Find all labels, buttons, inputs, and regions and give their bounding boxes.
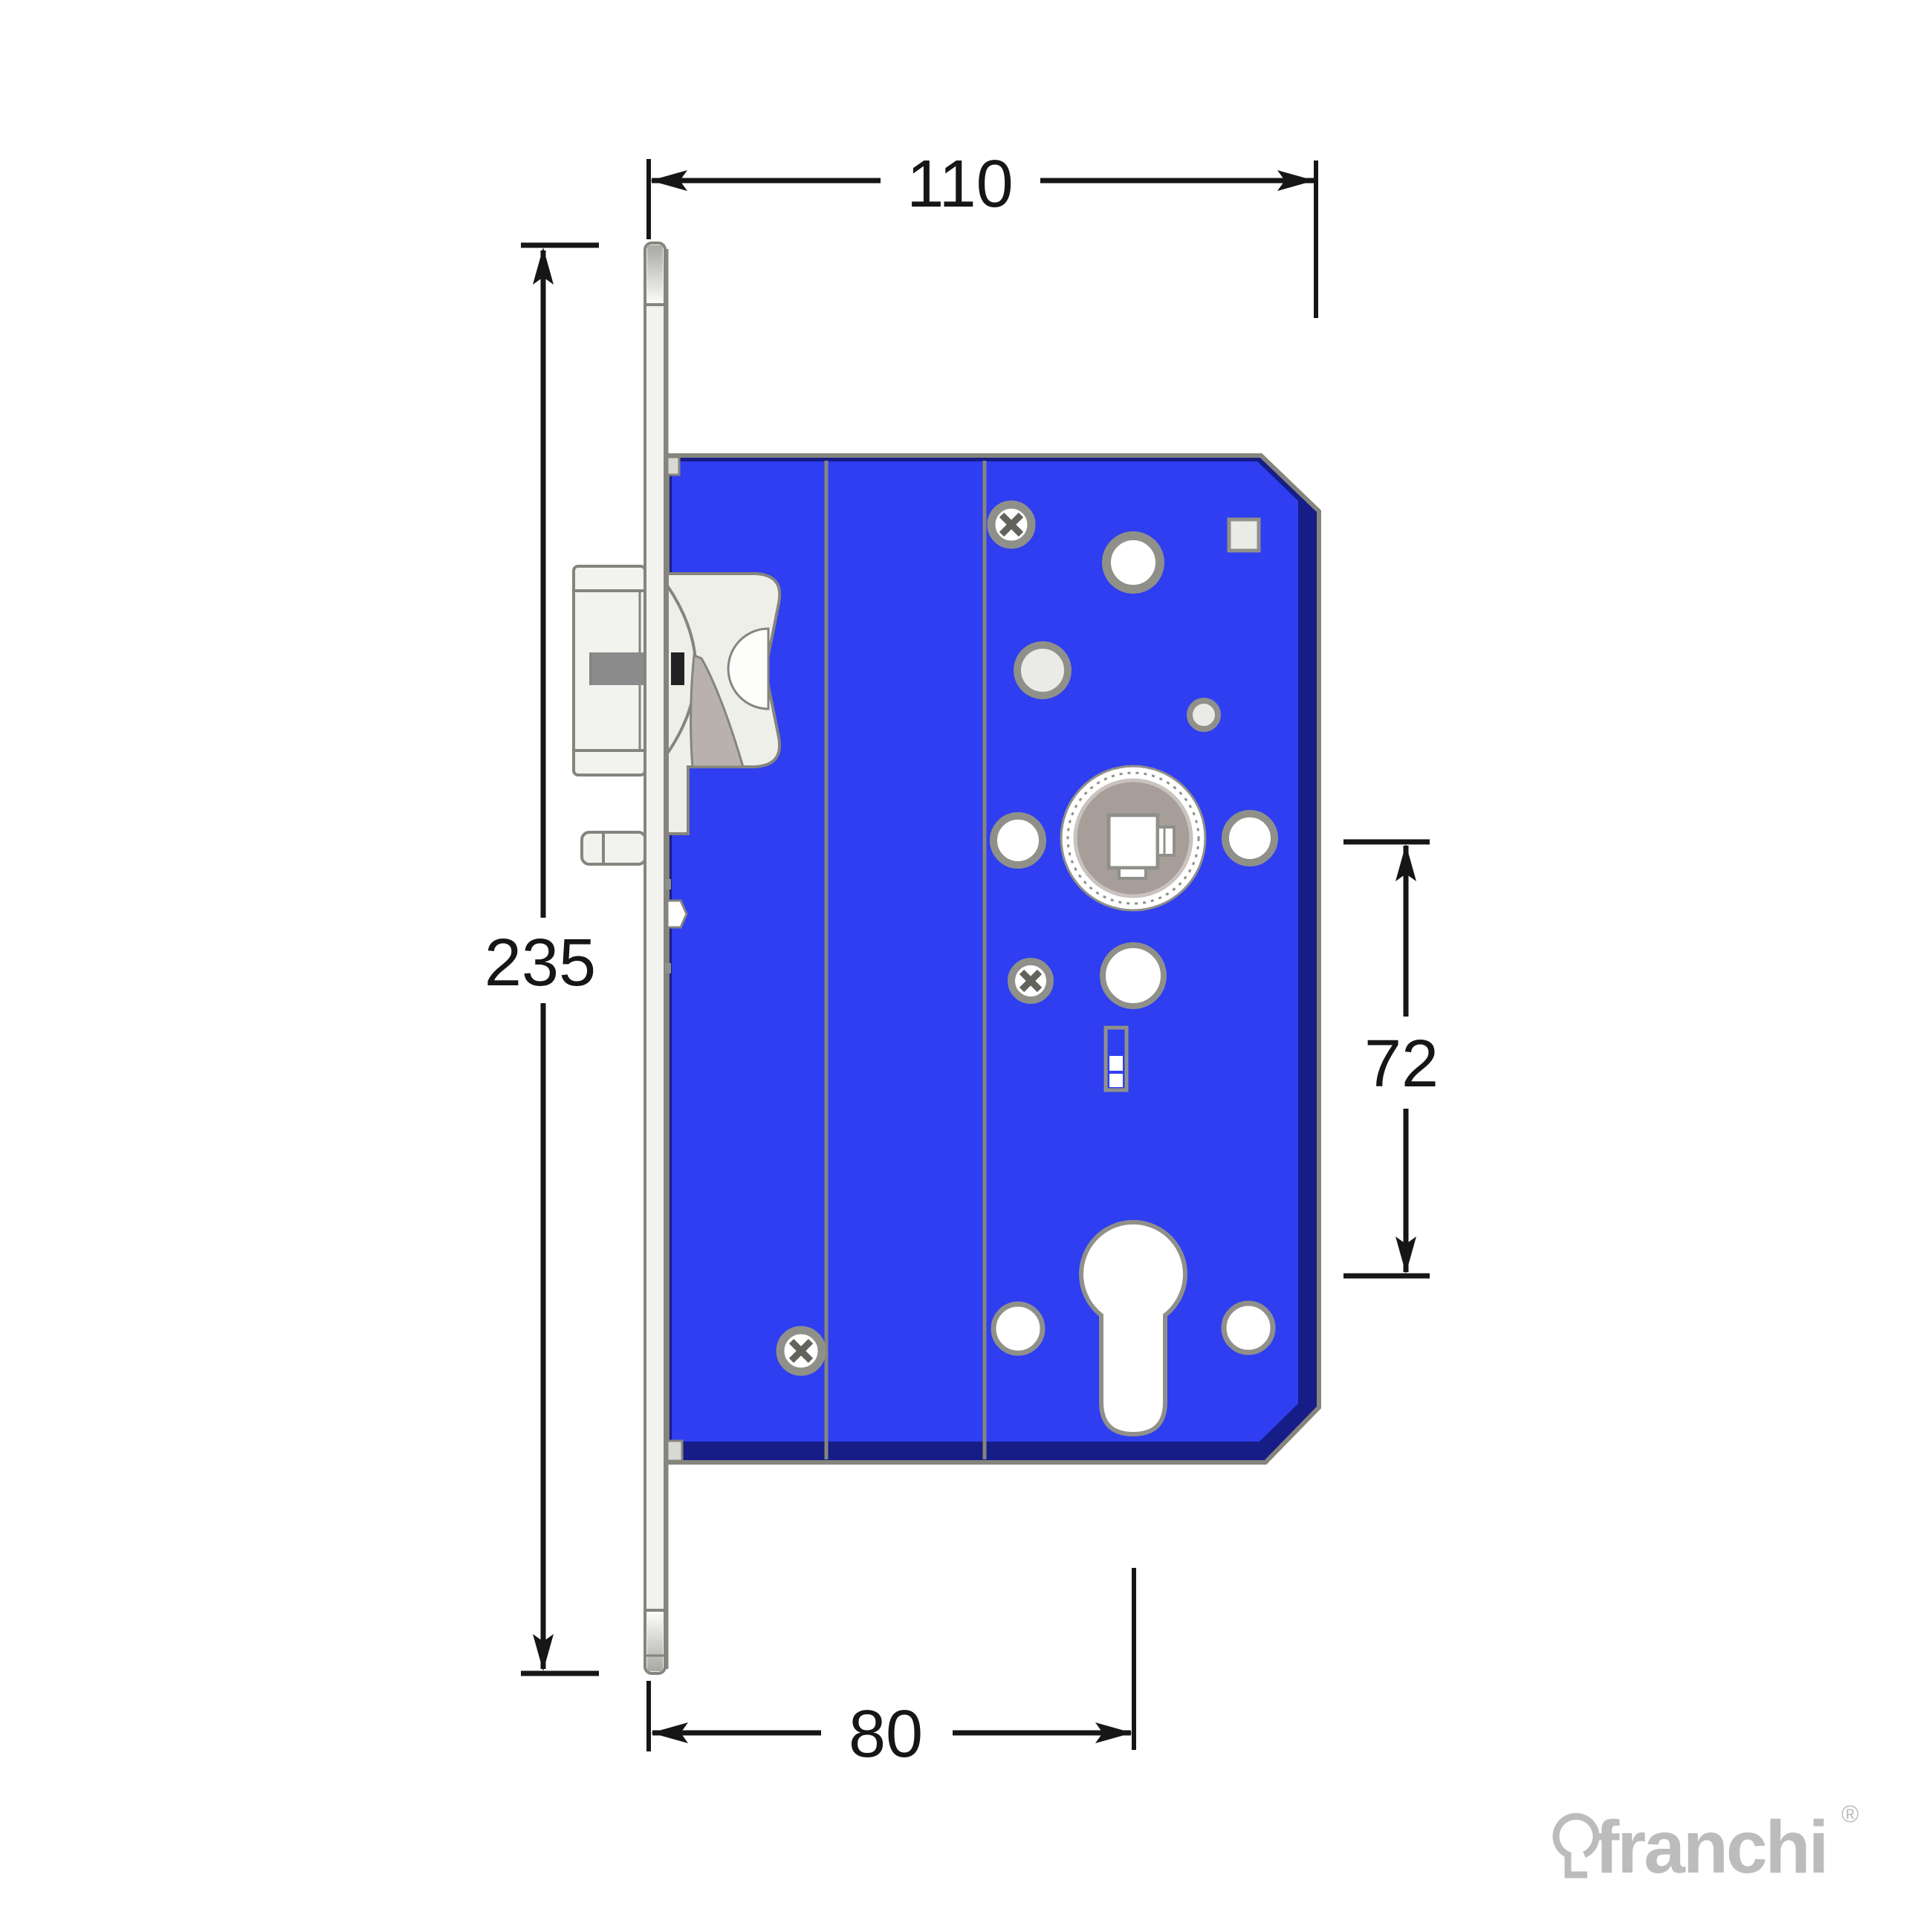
screw-bottom	[780, 1330, 822, 1372]
dimension-hub-to-cylinder: 72	[1343, 842, 1439, 1276]
dim-label-72: 72	[1364, 1027, 1439, 1101]
dim-label-80: 80	[849, 1697, 923, 1771]
faceplate	[645, 243, 667, 1673]
brand-name: franchi	[1595, 1806, 1826, 1889]
cylinder-flank-hole-right	[1224, 1303, 1273, 1352]
adjuster-slot-block-2	[1109, 1074, 1123, 1087]
hole-upper-mid	[1017, 645, 1068, 696]
case-top-left-notch	[667, 457, 679, 475]
dimension-overall-width: 110	[649, 147, 1316, 318]
latch-slot-dark	[671, 652, 684, 685]
faceplate-tab-upper	[665, 879, 671, 889]
hole-below-hub	[1103, 945, 1164, 1006]
dim-label-235: 235	[484, 926, 596, 1000]
screw-mid	[1011, 962, 1050, 1000]
faceplate-strip	[645, 243, 665, 1673]
dimension-faceplate-height: 235	[484, 245, 599, 1673]
registered-mark-icon: ®	[1841, 1800, 1859, 1827]
hub-bottom-tab	[1119, 868, 1146, 878]
deadlatch-pin	[582, 832, 646, 864]
cylinder-flank-hole-left	[993, 1304, 1043, 1353]
screw-top	[991, 505, 1031, 545]
hub-flank-hole-right	[1225, 814, 1274, 863]
adjuster-slot-block-1	[1109, 1056, 1123, 1071]
faceplate-bottom-cap	[647, 1612, 663, 1671]
hole-small-right	[1190, 701, 1218, 729]
technical-drawing: 110 235 72 80 franchi ®	[0, 0, 1932, 1932]
dim-label-110: 110	[907, 147, 1013, 221]
dimension-backset: 80	[649, 1568, 1134, 1771]
faceplate-tab-lower	[665, 963, 671, 973]
latch-bolt	[574, 566, 645, 775]
spindle-square-hole	[1109, 815, 1158, 868]
faceplate-top-cap	[647, 245, 663, 305]
brand-logo: franchi ®	[1556, 1800, 1859, 1889]
adjuster-slot	[1106, 1028, 1127, 1090]
spindle-hub	[1061, 766, 1205, 910]
hub-flank-hole-left	[993, 816, 1043, 865]
hub-side-tab	[1158, 827, 1174, 855]
latch-bolt-face-band	[591, 652, 645, 685]
deadlatch-pin-body	[582, 832, 646, 864]
case-bottom-left-notch	[667, 1441, 682, 1461]
keyhole-icon	[1556, 1816, 1596, 1875]
hole-top-center	[1106, 536, 1160, 589]
square-hole-top-right	[1229, 519, 1259, 551]
page: { "drawing": { "type": "mortise-lock-tec…	[0, 0, 1932, 1932]
